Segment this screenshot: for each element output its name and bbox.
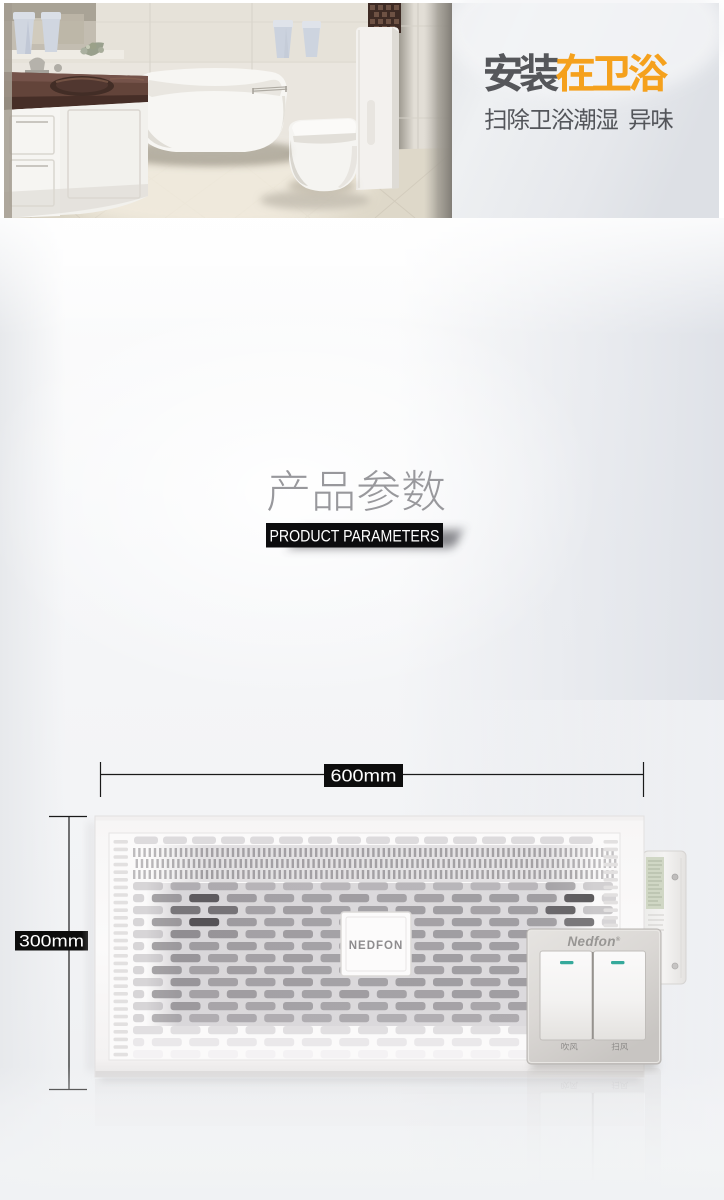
svg-text:PRODUCT PARAMETERS: PRODUCT PARAMETERS: [270, 528, 440, 546]
svg-text:Nedfon®: Nedfon®: [567, 934, 620, 949]
svg-text:NEDFON: NEDFON: [349, 940, 404, 952]
svg-text:600mm: 600mm: [331, 766, 397, 786]
svg-text:300mm: 300mm: [19, 932, 84, 951]
